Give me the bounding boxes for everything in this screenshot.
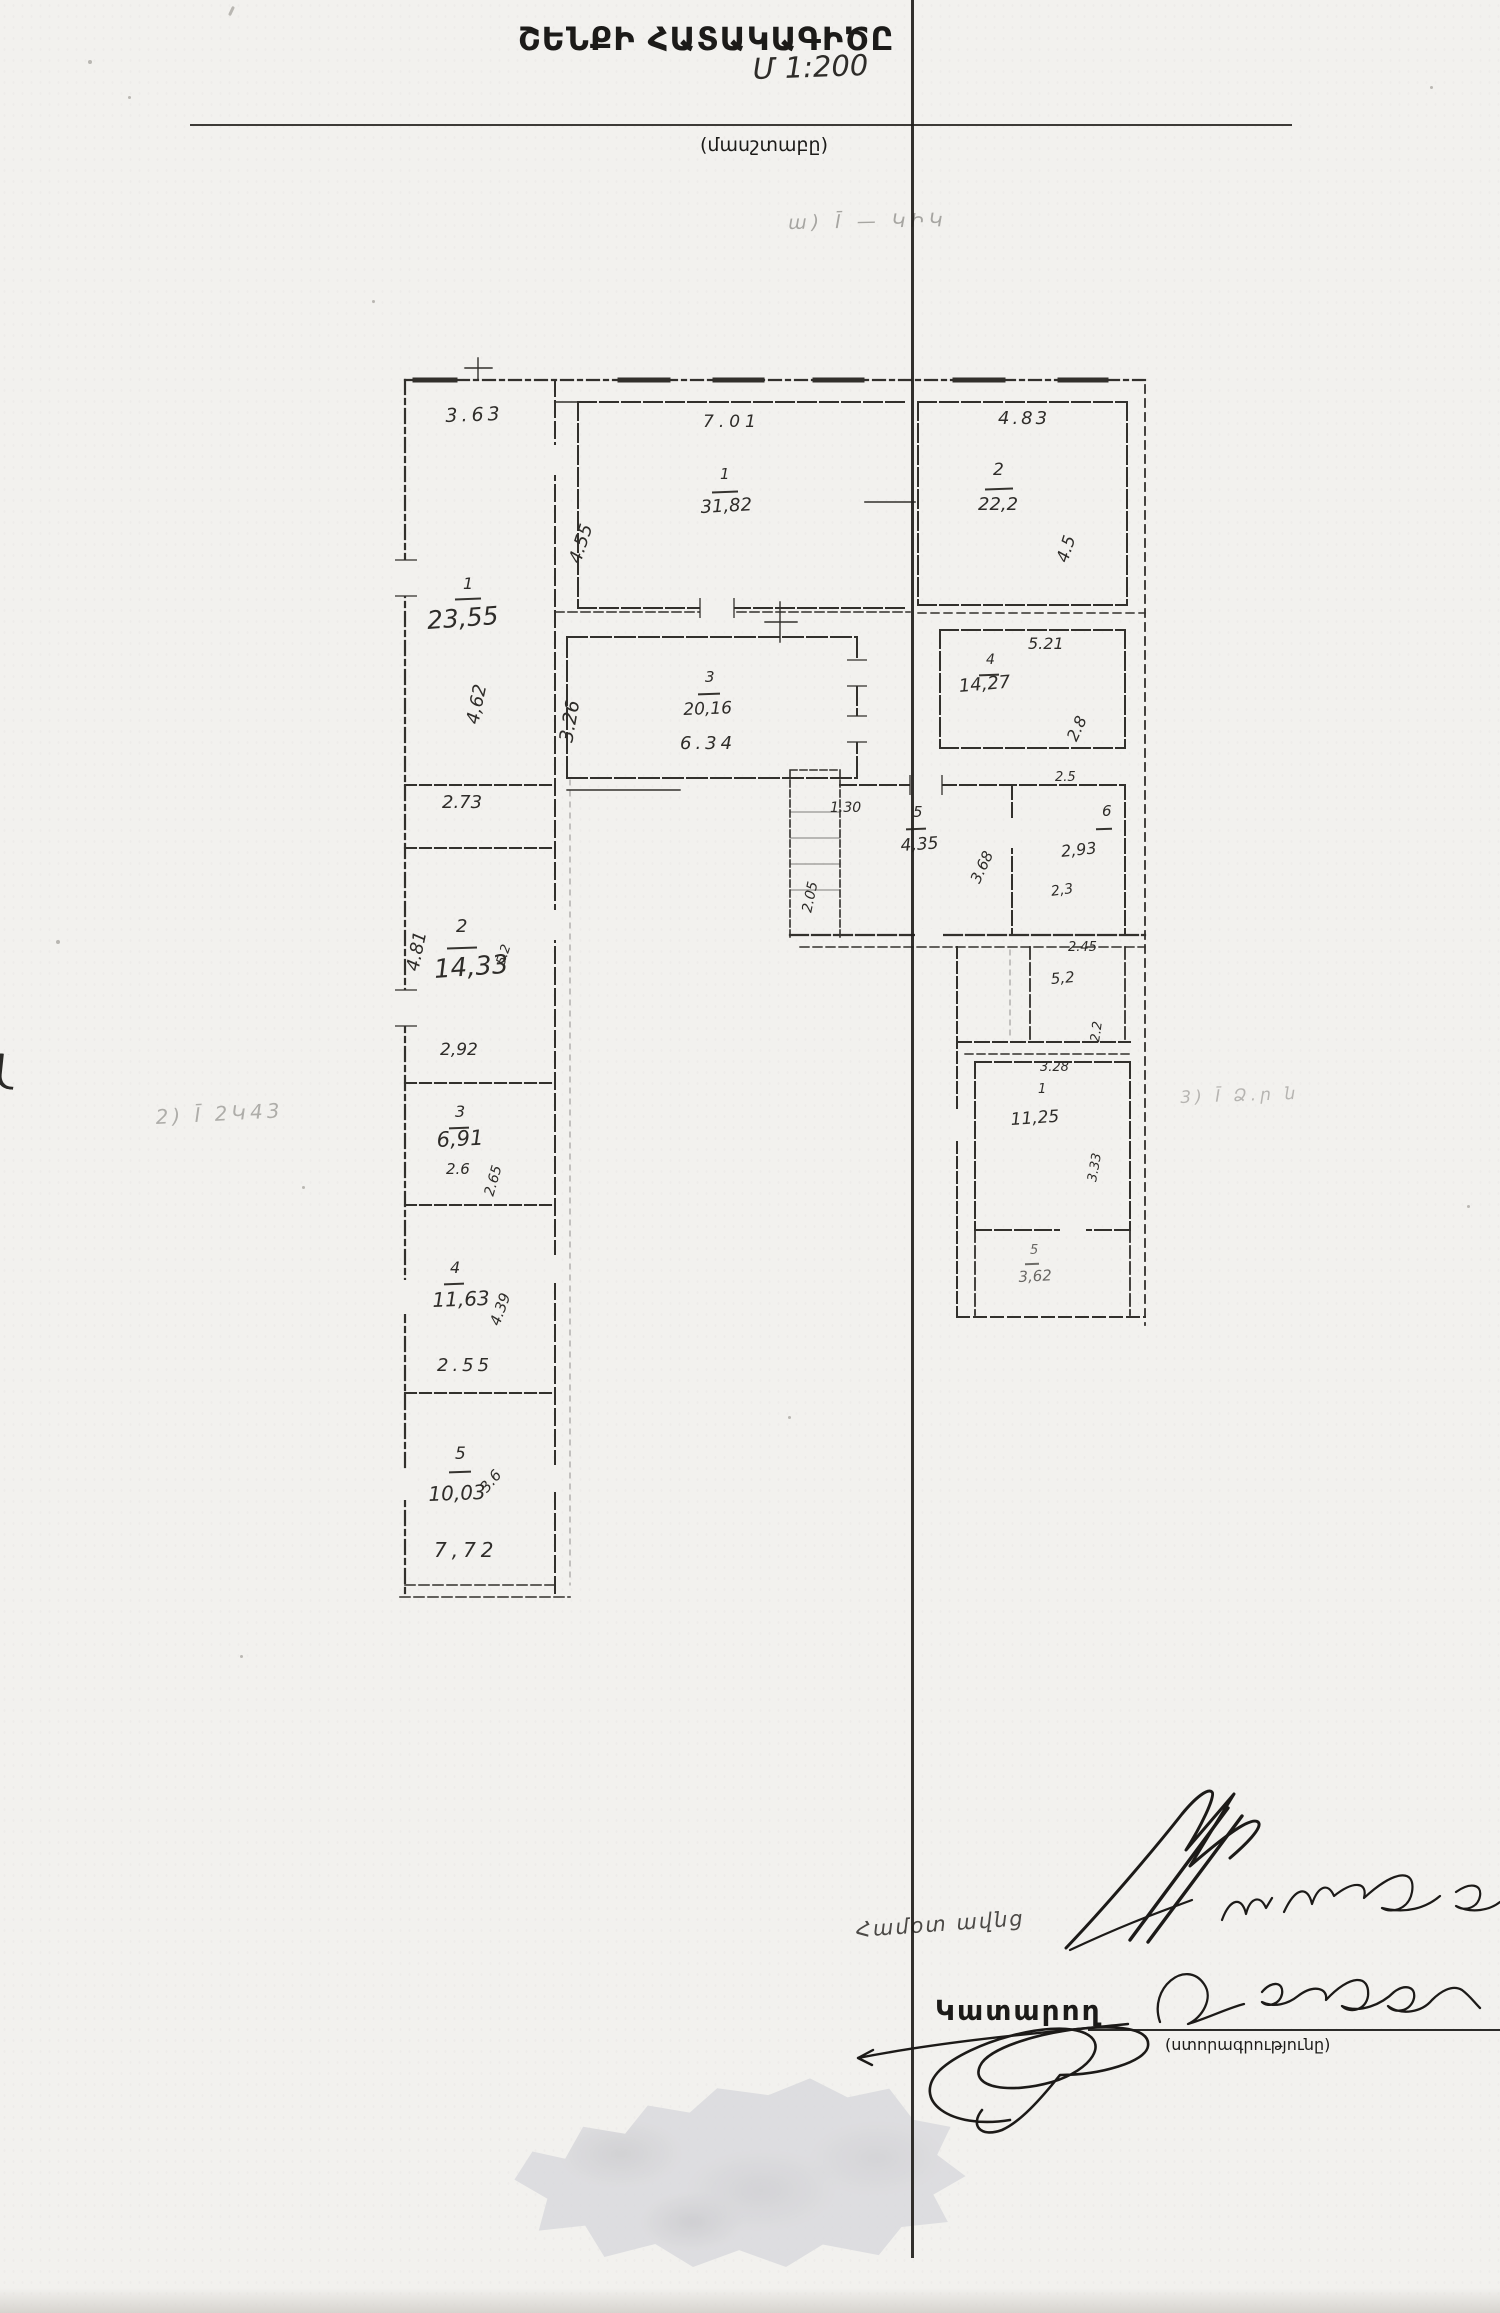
- dim-label: 4.83: [998, 408, 1050, 429]
- room-number: 5: [913, 803, 923, 821]
- room-number: 1: [463, 574, 473, 593]
- dim-label: 2.5: [1055, 770, 1076, 785]
- scale-caption: (մասշտաբը): [700, 134, 828, 156]
- room-number: 4: [986, 652, 995, 668]
- room-number: 5: [455, 1444, 466, 1464]
- room-area: 14,33: [433, 950, 509, 985]
- signature-stroke: [930, 2027, 1148, 2132]
- handwritten-note-top: ա) Ī — ԿԻԿ: [788, 209, 948, 234]
- signature-stroke: [1222, 1875, 1500, 1920]
- room-area: 6,91: [436, 1126, 484, 1152]
- room-area: 5,2: [1050, 968, 1075, 988]
- scale-value: Մ 1:200: [752, 48, 869, 86]
- floor-plan-drawing: [370, 350, 1170, 1640]
- speck: [128, 96, 131, 99]
- room-area: 4,35: [900, 833, 939, 856]
- room-area: 14,27: [958, 672, 1011, 697]
- room-area: 20,16: [683, 698, 732, 720]
- room-number: 3: [455, 1102, 465, 1121]
- room-number: 1: [1038, 1082, 1046, 1097]
- title-rule: [190, 124, 1292, 126]
- speck: [56, 940, 60, 944]
- room-area: 11,25: [1010, 1107, 1060, 1130]
- signature-stroke: [1130, 1808, 1242, 1942]
- dim-label: 2.2: [1088, 1020, 1106, 1043]
- speck: [302, 1186, 305, 1189]
- edge-ink-mark: [0, 1053, 17, 1090]
- dim-label: 7,72: [434, 1538, 499, 1562]
- room-area: 2,93: [1060, 838, 1097, 861]
- dim-label: 2.55: [437, 1355, 493, 1376]
- dim-label: 3.28: [1040, 1060, 1069, 1075]
- dim-label: 7.01: [703, 412, 761, 432]
- speck: [372, 300, 375, 303]
- bottom-smudge: [0, 2288, 1500, 2313]
- room-area: 23,55: [426, 601, 499, 635]
- dim-label: 5.21: [1028, 634, 1064, 653]
- room-number: 1: [720, 465, 730, 483]
- room-number: 5: [1030, 1243, 1038, 1258]
- dim-label: 2.73: [442, 792, 482, 813]
- signature-stroke: [858, 2024, 1128, 2065]
- room-number: 4: [450, 1258, 460, 1277]
- dim-label: 2,92: [440, 1040, 478, 1060]
- dim-label: 2.6: [446, 1160, 470, 1178]
- dim-label: 3.63: [445, 403, 504, 427]
- dim-label: 6.34: [680, 733, 736, 754]
- dim-label: 1.30: [830, 800, 861, 816]
- dim-label: 2.45: [1068, 940, 1097, 955]
- speck: [1430, 86, 1433, 89]
- room-area: 31,82: [700, 494, 753, 518]
- speck: [240, 1655, 243, 1658]
- speck: [88, 60, 92, 64]
- room-number: 2: [993, 460, 1004, 480]
- handwritten-note-left: 2) Ī 2Կ43: [155, 1098, 284, 1129]
- speck: [788, 1416, 791, 1419]
- room-area: 3,62: [1018, 1266, 1052, 1286]
- room-number: 6: [1102, 802, 1112, 820]
- dim-label: 2,3: [1050, 881, 1074, 900]
- room-area: 11,63: [432, 1286, 490, 1312]
- room-number: 2: [456, 916, 467, 937]
- speck: [228, 6, 235, 16]
- speck: [1467, 1205, 1470, 1208]
- scanned-floor-plan-page: { "document": { "title": "ՇԵՆՔԻ ՀԱՏԱԿԱԳԻ…: [0, 0, 1500, 2313]
- signatures: [830, 1770, 1500, 2170]
- room-number: 3: [705, 668, 715, 686]
- signature-stroke: [1158, 1974, 1480, 2024]
- handwritten-note-right: 3) Ī Ձ․ր ն: [1180, 1084, 1300, 1108]
- room-area: 22,2: [978, 494, 1018, 515]
